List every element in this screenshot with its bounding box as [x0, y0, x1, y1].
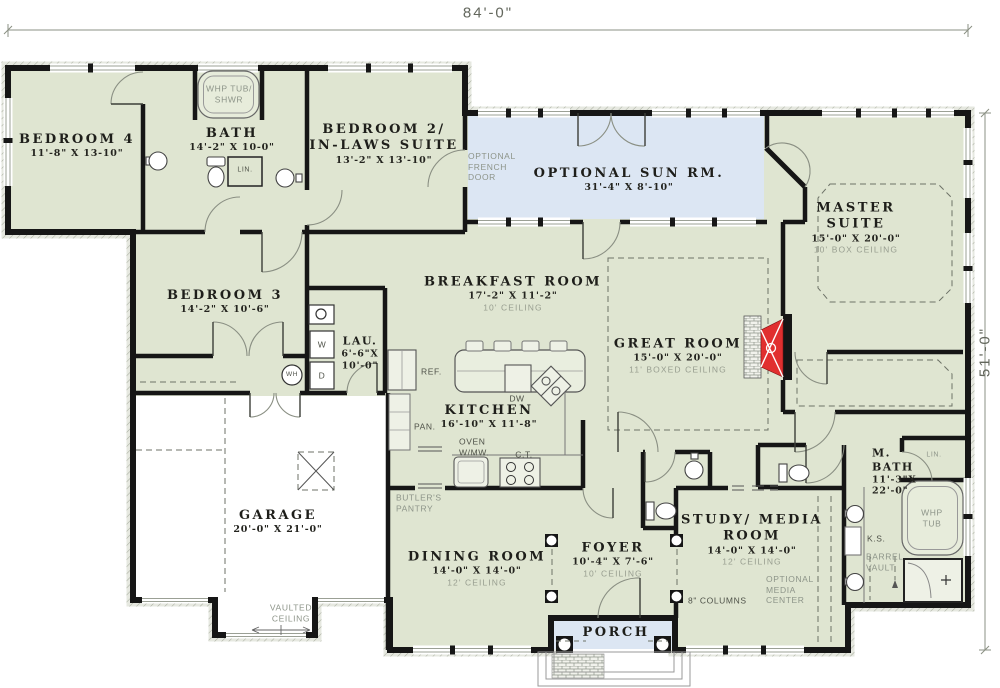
room-ceiling: 12' CEILING — [408, 578, 546, 589]
annotation-text: BARREL — [866, 551, 904, 562]
annotation-text: D — [319, 371, 326, 382]
annotation-text: WH — [286, 371, 298, 379]
room-dims: 11'-8" X 13-10" — [19, 148, 135, 160]
annotation-refrigerator: REF. — [421, 367, 442, 378]
annotation-cooktop: C.T. — [515, 450, 533, 461]
overall-depth-dimension: 51'-0" — [977, 327, 994, 377]
room-label-bedroom3: BEDROOM 3 14'-2" X 10'-6" — [167, 288, 283, 316]
annotation-vaulted-ceiling: VAULTED CEILING — [270, 602, 312, 623]
annotation-linen-master: LIN. — [926, 452, 941, 461]
annotation-text: FRENCH — [468, 162, 516, 173]
master-shower — [904, 559, 962, 602]
annotation-whp-tub-shwr: WHP TUB/ SHWR — [206, 83, 252, 104]
room-name: BREAKFAST ROOM — [424, 275, 602, 291]
room-label-breakfast: BREAKFAST ROOM 17'-2" X 11'-2" 10' CEILI… — [424, 275, 602, 314]
annotation-text: OPTIONAL — [766, 574, 814, 585]
annotation-text: LIN. — [237, 167, 252, 176]
annotation-text: W/MW. — [459, 447, 489, 458]
annotation-text: MEDIA — [766, 585, 814, 596]
overall-width-dimension: 84'-0" — [463, 5, 513, 22]
room-dims: 17'-2" X 11'-2" — [424, 291, 602, 303]
room-label-foyer: FOYER 10'-4" X 7'-6" 10' CEILING — [572, 541, 654, 580]
room-name-2: ROOM — [681, 529, 823, 545]
annotation-barrel-vault: BARREL VAULT — [866, 551, 904, 572]
annotation-text: OVEN — [459, 436, 489, 447]
annotation-knee-space: K.S. — [867, 534, 885, 545]
annotation-text: C.T. — [515, 450, 533, 461]
toilet — [207, 157, 225, 187]
room-name-2: BATH — [872, 460, 917, 474]
room-label-great-room: GREAT ROOM 15'-0" X 20'-0" 11' BOXED CEI… — [614, 337, 742, 376]
annotation-linen-bath: LIN. — [237, 167, 252, 176]
annotation-optional-french-door: OPTIONAL FRENCH DOOR — [468, 151, 516, 183]
annotation-text: WHP TUB/ — [206, 83, 252, 94]
room-dims: 14'-0" X 14'-0" — [408, 566, 546, 578]
room-dims: 20'-0" X 21'-0" — [233, 524, 322, 536]
room-dims-2: 10'-0" — [341, 360, 378, 372]
room-dims: 14'-0" X 14'-0" — [681, 545, 823, 557]
annotation-text: OPTIONAL — [468, 151, 516, 162]
room-name-2: IN-LAWS SUITE — [309, 138, 458, 154]
annotation-dryer: D — [319, 371, 326, 382]
annotation-text: VAULT — [866, 562, 904, 573]
annotation-butlers-pantry: BUTLER'S PANTRY — [396, 492, 442, 513]
annotation-dishwasher: DW — [509, 394, 524, 405]
room-label-dining: DINING ROOM 14'-0" X 14'-0" 12' CEILING — [408, 550, 546, 589]
room-dims: 6'-6"X — [341, 348, 378, 360]
annotation-text: 8" COLUMNS — [688, 596, 747, 607]
room-dims: 31'-4" X 8'-10" — [534, 182, 725, 194]
room-name: M. — [872, 446, 917, 460]
room-ceiling: 10' BOX CEILING — [811, 245, 900, 256]
annotation-columns: 8" COLUMNS — [688, 596, 747, 607]
room-dims: 16'-10" X 11'-8" — [441, 419, 538, 431]
room-name: FOYER — [572, 541, 654, 557]
room-label-kitchen: KITCHEN 16'-10" X 11'-8" — [441, 403, 538, 431]
annotation-text: VAULTED — [270, 602, 312, 613]
annotation-optional-media-center: OPTIONAL MEDIA CENTER — [766, 574, 814, 606]
annotation-text: CEILING — [270, 613, 312, 624]
room-name: LAU. — [341, 334, 378, 348]
annotation-text: W — [318, 340, 327, 351]
cooktop — [500, 458, 540, 487]
annotation-text: DW — [509, 394, 524, 405]
room-label-sunroom: OPTIONAL SUN RM. 31'-4" X 8'-10" — [534, 166, 725, 194]
room-name: MASTER — [811, 201, 900, 217]
room-dims: 10'-4" X 7'-6" — [572, 557, 654, 569]
room-dims-2: 22'-0" — [872, 486, 917, 498]
annotation-text: PAN. — [414, 422, 436, 433]
room-label-bedroom2: BEDROOM 2/ IN-LAWS SUITE 13'-2" X 13'-10… — [309, 122, 458, 166]
annotation-text: CENTER — [766, 595, 814, 606]
room-name: BATH — [189, 126, 275, 142]
annotation-master-whp-tub: WHP TUB — [921, 507, 943, 528]
width-dim-text: 84'-0" — [463, 5, 513, 22]
room-name: DINING ROOM — [408, 550, 546, 566]
annotation-oven-microwave: OVEN W/MW. — [459, 436, 489, 457]
room-label-bath: BATH 14'-2" X 10-0" — [189, 126, 275, 154]
dishwasher — [505, 365, 531, 392]
room-label-master-bath: M. BATH 11'-3"X 22'-0" — [872, 446, 917, 497]
room-dims: 11'-3"X — [872, 474, 917, 486]
annotation-pantry: PAN. — [414, 422, 436, 433]
knee-space — [845, 527, 861, 555]
annotation-text: K.S. — [867, 534, 885, 545]
room-label-porch: PORCH — [582, 625, 649, 641]
room-name: OPTIONAL SUN RM. — [534, 166, 725, 182]
depth-dim-text: 51'-0" — [977, 327, 994, 377]
garage-floor — [136, 396, 386, 597]
room-ceiling: 10' CEILING — [424, 303, 602, 314]
room-dims: 14'-2" X 10'-6" — [167, 304, 283, 316]
room-name: STUDY/ MEDIA — [681, 513, 823, 529]
floor-plan: 84'-0" 51'-0" BEDROOM 4 11'-8" X 13-10" … — [0, 0, 1000, 688]
annotation-text: DOOR — [468, 172, 516, 183]
room-name: BEDROOM 2/ — [309, 122, 458, 138]
room-name: BEDROOM 3 — [167, 288, 283, 304]
water-closet-toilet — [779, 464, 809, 482]
room-dims: 14'-2" X 10-0" — [189, 142, 275, 154]
room-label-master: MASTER SUITE 15'-0" X 20'-0" 10' BOX CEI… — [811, 201, 900, 256]
room-name: KITCHEN — [441, 403, 538, 419]
room-label-garage: GARAGE 20'-0" X 21'-0" — [233, 508, 322, 536]
annotation-text: TUB — [921, 518, 943, 529]
annotation-text: SHWR — [206, 94, 252, 105]
room-name: GREAT ROOM — [614, 337, 742, 353]
room-label-laundry: LAU. 6'-6"X 10'-0" — [341, 334, 378, 372]
annotation-text: BUTLER'S — [396, 492, 442, 503]
annotation-text: PANTRY — [396, 503, 442, 514]
room-dims: 13'-2" X 13'-10" — [309, 154, 458, 166]
room-ceiling: 10' CEILING — [572, 569, 654, 580]
room-ceiling: 12' CEILING — [681, 557, 823, 568]
annotation-water-heater: WH — [286, 371, 298, 379]
room-name: PORCH — [582, 625, 649, 641]
annotation-text: LIN. — [926, 452, 941, 461]
room-ceiling: 11' BOXED CEILING — [614, 365, 742, 376]
room-dims: 15'-0" X 20'-0" — [811, 233, 900, 245]
room-label-study: STUDY/ MEDIA ROOM 14'-0" X 14'-0" 12' CE… — [681, 513, 823, 568]
annotation-washer: W — [318, 340, 327, 351]
room-dims: 15'-0" X 20'-0" — [614, 353, 742, 365]
pantry-cabinet — [389, 394, 410, 450]
room-name-2: SUITE — [811, 217, 900, 233]
room-label-bedroom4: BEDROOM 4 11'-8" X 13-10" — [19, 132, 135, 160]
annotation-text: REF. — [421, 367, 442, 378]
annotation-text: WHP — [921, 507, 943, 518]
room-name: BEDROOM 4 — [19, 132, 135, 148]
room-name: GARAGE — [233, 508, 322, 524]
